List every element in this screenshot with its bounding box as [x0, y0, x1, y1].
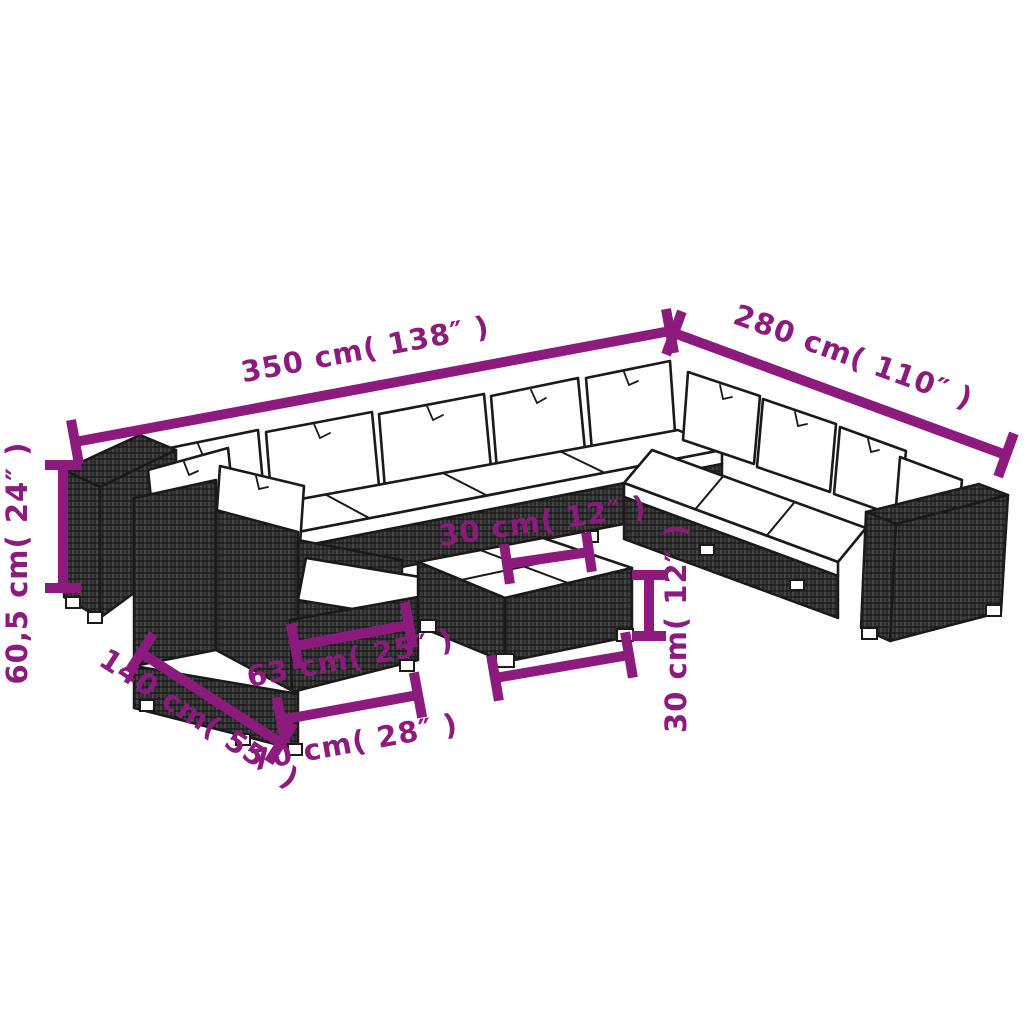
dimension-label: 60,5 cm( 24″ ) — [0, 441, 34, 684]
product-image: 350 cm( 138″ ) 280 cm( 110″ ) 60,5 cm( 2… — [0, 0, 1024, 1024]
sofa-foot — [700, 545, 714, 555]
dimension-table-height: 30 cm( 12″ ) — [632, 523, 693, 733]
dimension-label: 30 cm( 12″ ) — [659, 523, 693, 733]
dimension-diagram: 350 cm( 138″ ) 280 cm( 110″ ) 60,5 cm( 2… — [0, 0, 1024, 1024]
table-foot — [496, 654, 514, 667]
right-armrest — [861, 484, 1008, 641]
sofa-foot — [790, 580, 804, 590]
back-pillow — [757, 399, 836, 492]
dimension-label: 350 cm( 138″ ) — [238, 309, 492, 389]
